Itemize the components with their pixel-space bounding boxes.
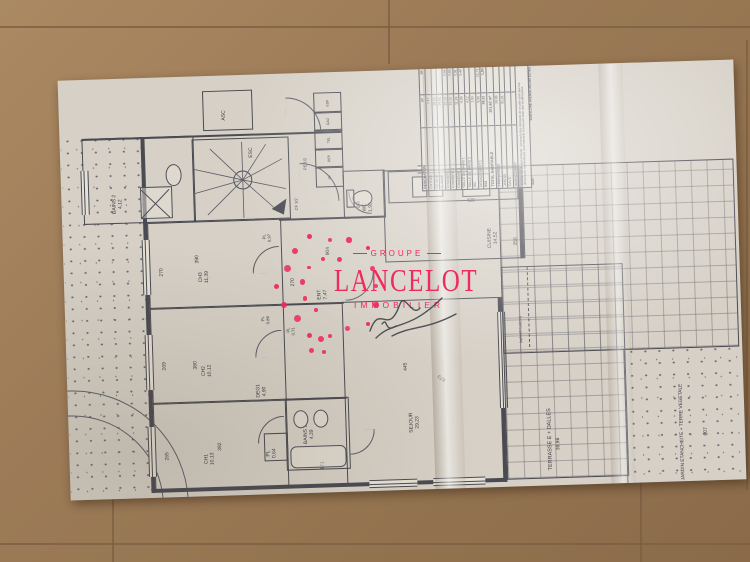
table-cell <box>464 67 469 94</box>
room-sejour <box>342 297 508 485</box>
surface-table-rows: DESIGNATIONm²m²ENTREE7,47SEJOUR29,23CUIS… <box>419 65 519 190</box>
room-label: SEJOUR29,23 <box>409 412 421 433</box>
door-arc <box>345 271 375 301</box>
table-cell: m² <box>420 95 426 128</box>
window <box>145 335 155 390</box>
table-cell <box>469 67 474 94</box>
room-label: CH210,12 <box>202 364 214 377</box>
room-label: BAINS 24,12 <box>112 195 124 215</box>
room-label: CH311,39 <box>199 271 211 284</box>
table-cell <box>493 66 498 93</box>
plan-label: 265 <box>165 452 171 461</box>
table-cell: 0,40 <box>458 67 463 94</box>
toilet-tank <box>346 189 355 207</box>
window <box>369 479 417 489</box>
room-asc <box>202 90 253 132</box>
closet-rep: REP <box>315 148 344 169</box>
room-label: CUISINE14,52 <box>487 228 499 249</box>
plan-label: 270 <box>160 268 166 277</box>
closet-tel: TEL <box>314 129 343 150</box>
table-cell: 98,12 <box>481 93 487 126</box>
table-cell: 12,71 <box>475 66 480 93</box>
plan-label: 380 <box>193 361 199 370</box>
table-cell <box>510 65 515 92</box>
table-cell <box>436 68 441 95</box>
floor-grout-line <box>112 495 114 562</box>
inner-wall <box>282 302 344 306</box>
table-cell <box>431 68 436 95</box>
bathtub <box>290 445 347 469</box>
plan-label: 0,97 <box>267 234 272 242</box>
table-cell: 101,62 m² <box>487 93 494 126</box>
floor-grout-line <box>746 40 748 490</box>
terrace-tiled-area <box>497 159 739 354</box>
floor-plan-drawing: CH110,13CH210,12CH311,39BAINS 24,12BAINS… <box>58 59 741 500</box>
shower-cross-icon <box>140 188 171 219</box>
room-label: PL0,64 <box>266 448 278 458</box>
window <box>147 427 157 477</box>
spiral-staircase <box>192 139 289 222</box>
plan-label: 7,47 <box>323 290 329 300</box>
plan-label: 269 <box>162 362 168 371</box>
plan-paper-sheet: CH110,13CH210,12CH311,39BAINS 24,12BAINS… <box>58 59 747 500</box>
floor-grout-line <box>640 478 642 562</box>
plan-label: CF 1/2 <box>294 198 299 210</box>
plan-label: 390 <box>195 255 201 264</box>
table-cell: 0,84 <box>442 68 447 95</box>
photo-of-floor-plan: CH110,13CH210,12CH311,39BAINS 24,12BAINS… <box>0 0 750 562</box>
surface-table: DESIGNATIONm²m²ENTREE7,47SEJOUR29,23CUIS… <box>418 64 532 191</box>
floor-grout-line <box>388 0 390 64</box>
room-label: BAINS 14,39 <box>304 425 316 445</box>
table-cell <box>425 68 430 95</box>
plan-label: 4,90 <box>262 387 268 397</box>
garden-strip <box>623 346 742 490</box>
table-cell <box>486 66 493 93</box>
date-label: date : <box>530 177 534 185</box>
window <box>80 171 89 215</box>
table-cell: 0,86 <box>447 67 452 94</box>
plan-label: 445 <box>404 362 410 371</box>
window <box>433 476 485 486</box>
room-label: CH110,13 <box>204 452 216 465</box>
window <box>142 240 152 295</box>
plan-label: 0,86 <box>266 316 271 324</box>
table-cell: 0,91 <box>453 67 458 94</box>
table-cell: 1,50 <box>480 66 486 93</box>
table-cell <box>499 66 504 93</box>
plan-label: 0,71 <box>291 327 296 335</box>
floor-grout-line <box>0 26 750 28</box>
toilet <box>352 190 372 207</box>
plan-label: 904 <box>326 247 332 256</box>
table-cell <box>504 66 509 93</box>
closet-edf: EDF <box>313 92 342 113</box>
plan-label: 392 <box>218 442 224 451</box>
plan-label: 270 <box>291 278 297 287</box>
room-label: ASC <box>222 110 228 120</box>
architect-firm: BABYLONE AVENUE ARCHITECTES <box>527 67 533 121</box>
table-cell: m² <box>419 68 425 95</box>
